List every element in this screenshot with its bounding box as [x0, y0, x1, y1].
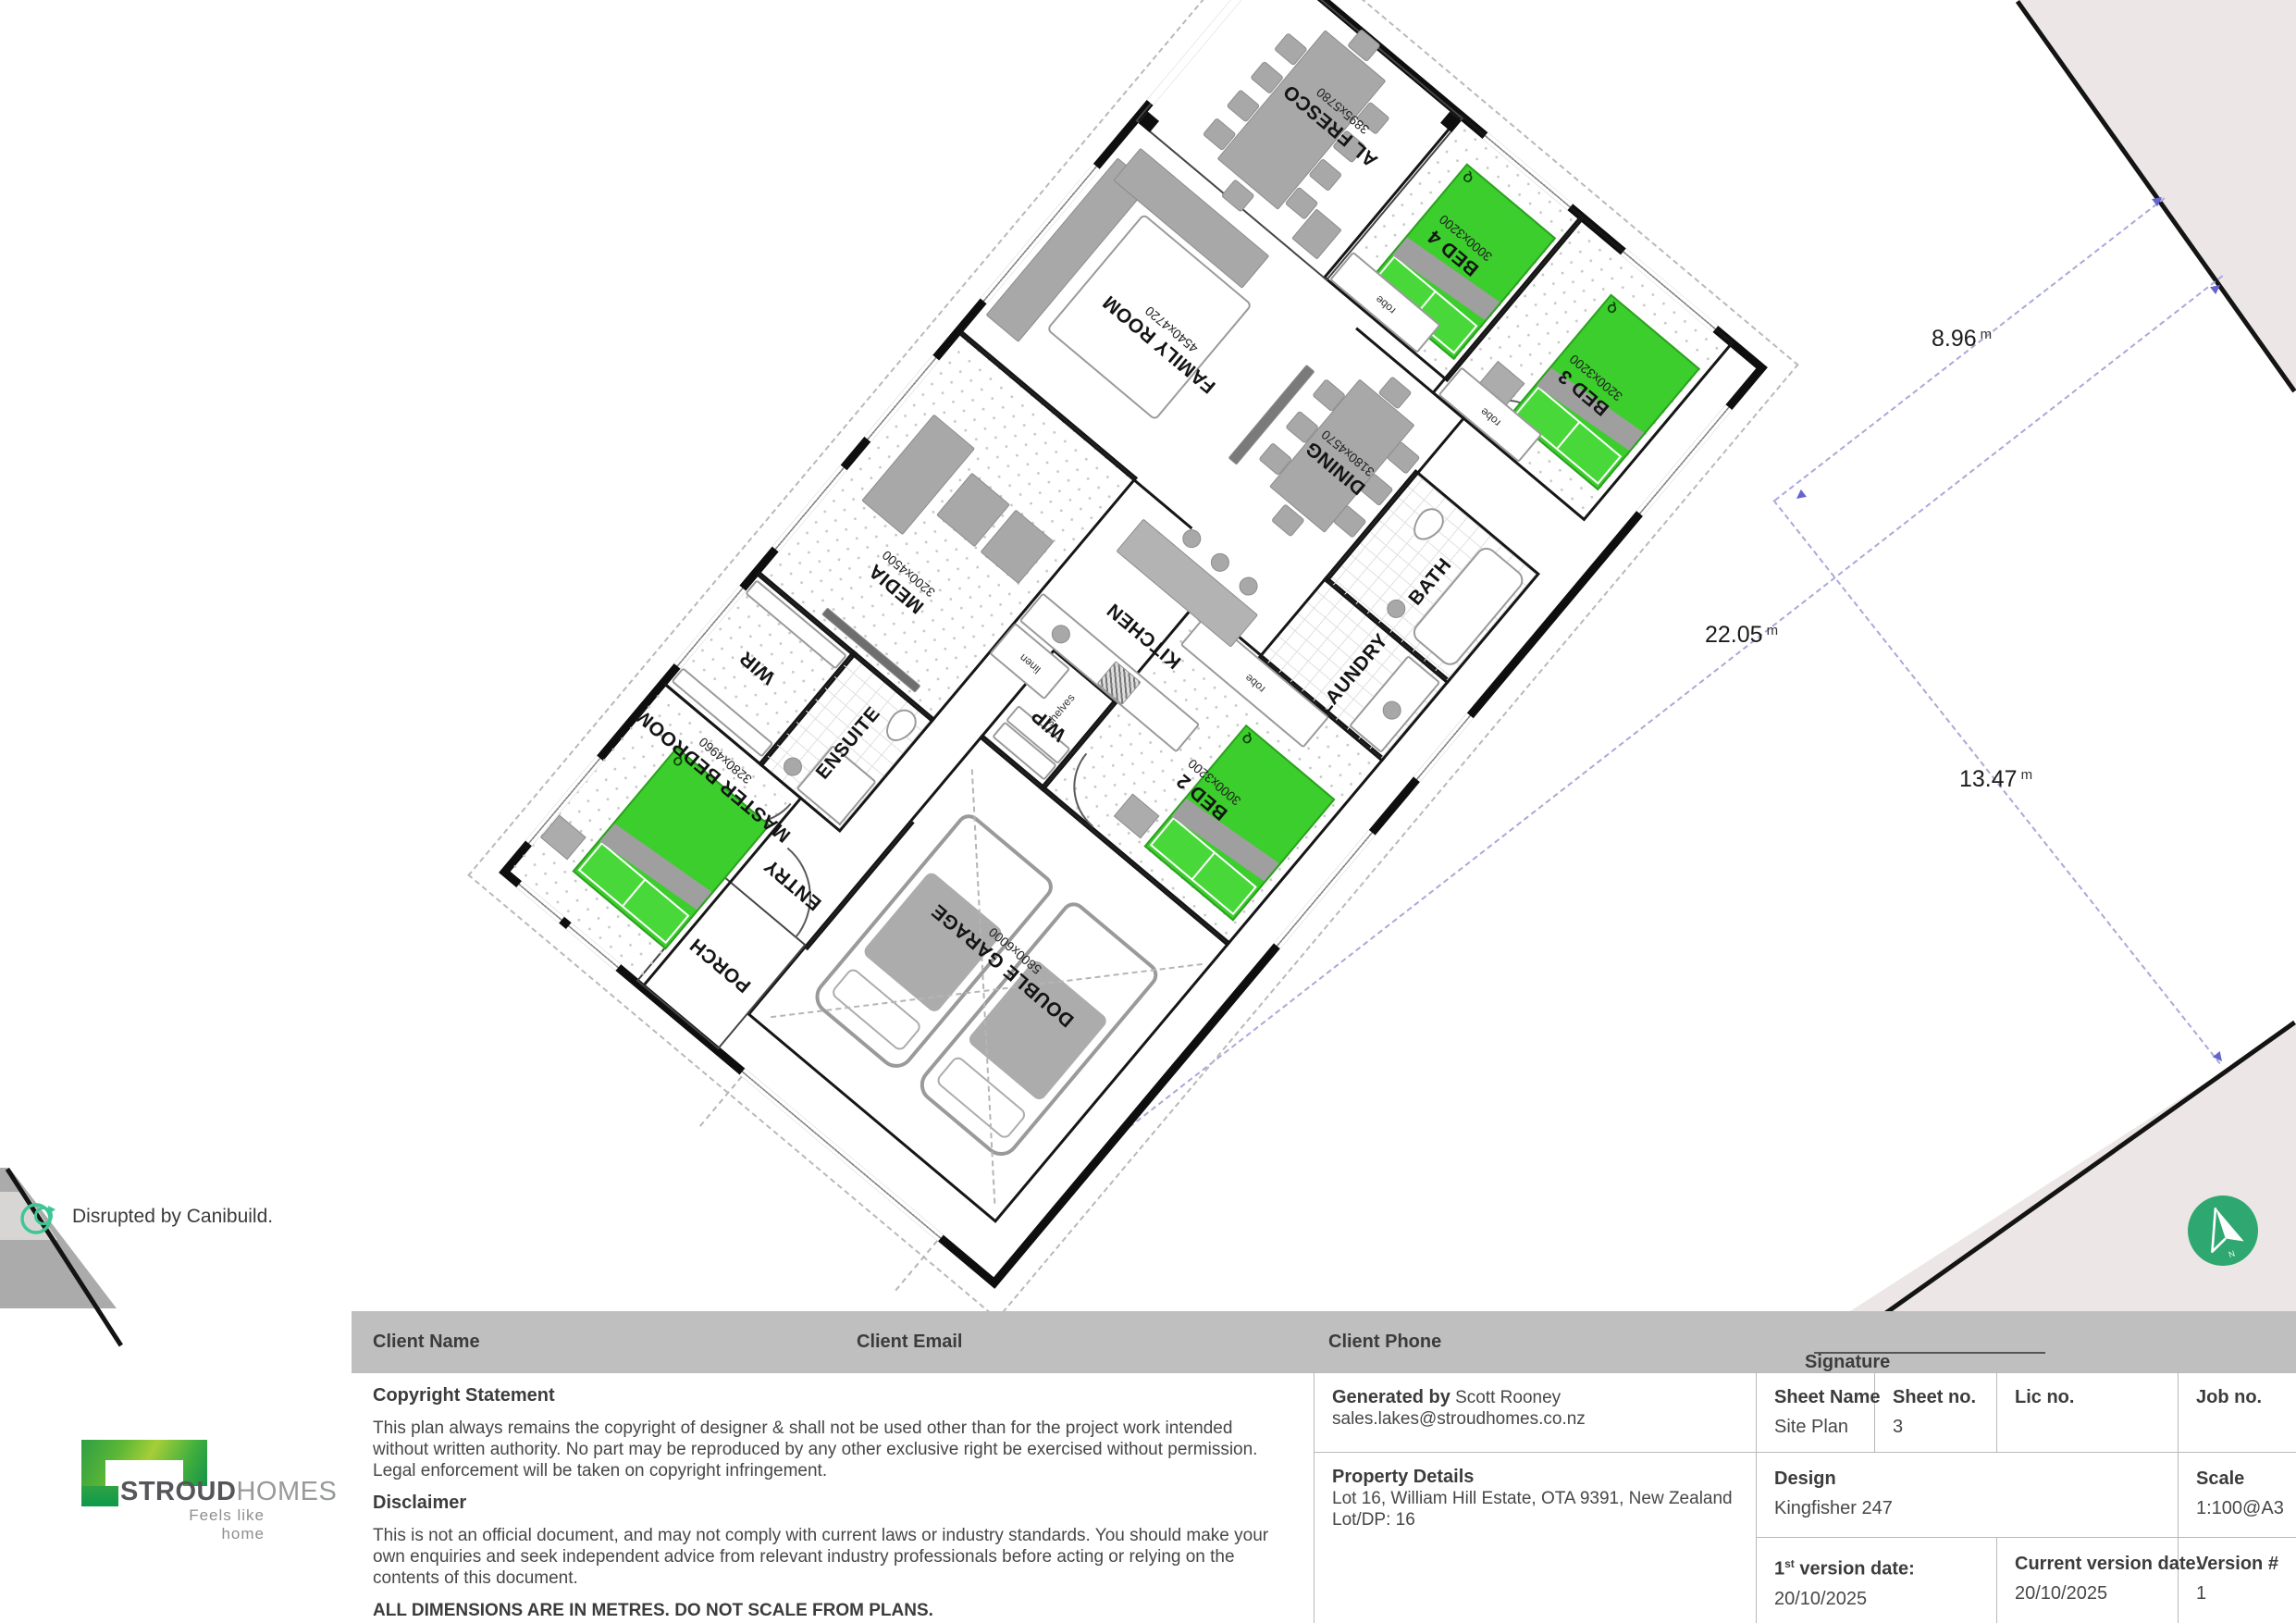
client-phone-label: Client Phone	[1328, 1332, 1441, 1353]
site-plan-sheet: 8.96m 22.05m 13.47m	[0, 0, 2296, 1623]
dimension-arrow	[2213, 1051, 2226, 1064]
client-email-label: Client Email	[857, 1332, 962, 1353]
copyright-cell: Copyright Statement This plan always rem…	[373, 1385, 1270, 1621]
first-version-label: 1st version date:	[1774, 1554, 1915, 1580]
generated-by-cell: Generated by Scott Rooney sales.lakes@st…	[1332, 1387, 1730, 1430]
version-number-cell: Version # 1	[2196, 1554, 2278, 1604]
dimension-label-13-47: 13.47m	[1959, 766, 2032, 793]
current-version-cell: Current version date: 20/10/2025	[2015, 1554, 2202, 1604]
canibuild-logo-icon	[17, 1197, 59, 1240]
client-name-label: Client Name	[373, 1332, 480, 1353]
floor-plan: Q Q Q Q robe robe robe linen shelves	[499, 0, 1768, 1289]
first-version-cell: 1st version date: 20/10/2025	[1774, 1554, 1915, 1610]
dimension-arrow	[1794, 489, 1807, 502]
scale-label: Scale	[2196, 1468, 2284, 1490]
sheet-name-label: Sheet Name	[1774, 1387, 1881, 1408]
job-no-label: Job no.	[2196, 1387, 2262, 1408]
disclaimer-heading: Disclaimer	[373, 1493, 1270, 1514]
copyright-body: This plan always remains the copyright o…	[373, 1418, 1270, 1481]
generated-by-label: Generated by	[1332, 1387, 1450, 1407]
generated-by-value: Scott Rooney	[1455, 1388, 1561, 1407]
north-arrow-icon: N	[2188, 1196, 2258, 1266]
sheet-no-cell: Sheet no. 3	[1893, 1387, 1976, 1438]
stroud-logo-foot	[81, 1486, 118, 1506]
property-lot: Lot/DP: 16	[1332, 1509, 1739, 1530]
dimension-label-22-05: 22.05m	[1705, 622, 1778, 649]
current-version-date: 20/10/2025	[2015, 1583, 2202, 1604]
lic-no-cell: Lic no.	[2015, 1387, 2074, 1408]
lic-no-label: Lic no.	[2015, 1387, 2074, 1408]
design-cell: Design Kingfisher 247	[1774, 1468, 1893, 1519]
signature-line	[1814, 1352, 2045, 1354]
dimensions-note: ALL DIMENSIONS ARE IN METRES. DO NOT SCA…	[373, 1600, 1270, 1621]
generated-email: sales.lakes@stroudhomes.co.nz	[1332, 1408, 1730, 1430]
copyright-heading: Copyright Statement	[373, 1385, 1270, 1406]
version-number-value: 1	[2196, 1583, 2278, 1604]
stroud-logo-text: STROUDHOMES	[120, 1477, 337, 1507]
property-address: Lot 16, William Hill Estate, OTA 9391, N…	[1332, 1488, 1739, 1509]
disclaimer-body: This is not an official document, and ma…	[373, 1525, 1270, 1589]
stroud-homes-logo: STROUDHOMES Feels like home	[81, 1440, 276, 1529]
canibuild-tagline: Disrupted by Canibuild.	[72, 1206, 273, 1228]
sheet-no-value: 3	[1893, 1417, 1976, 1438]
sheet-name-value: Site Plan	[1774, 1417, 1881, 1438]
current-version-label: Current version date:	[2015, 1554, 2202, 1575]
title-block-header: Client Name Client Email Client Phone Si…	[352, 1311, 2296, 1372]
property-heading: Property Details	[1332, 1467, 1739, 1488]
property-details-cell: Property Details Lot 16, William Hill Es…	[1332, 1467, 1739, 1530]
design-value: Kingfisher 247	[1774, 1498, 1893, 1519]
first-version-date: 20/10/2025	[1774, 1589, 1915, 1610]
dimension-label-8-96: 8.96m	[1932, 326, 1992, 353]
version-number-label: Version #	[2196, 1554, 2278, 1575]
job-no-cell: Job no.	[2196, 1387, 2262, 1408]
sheet-name-cell: Sheet Name Site Plan	[1774, 1387, 1881, 1438]
stroud-logo-tagline: Feels like home	[148, 1506, 265, 1543]
title-block: Client Name Client Email Client Phone Si…	[352, 1311, 2296, 1623]
scale-cell: Scale 1:100@A3	[2196, 1468, 2284, 1519]
sheet-no-label: Sheet no.	[1893, 1387, 1976, 1408]
design-label: Design	[1774, 1468, 1893, 1490]
scale-value: 1:100@A3	[2196, 1498, 2284, 1519]
